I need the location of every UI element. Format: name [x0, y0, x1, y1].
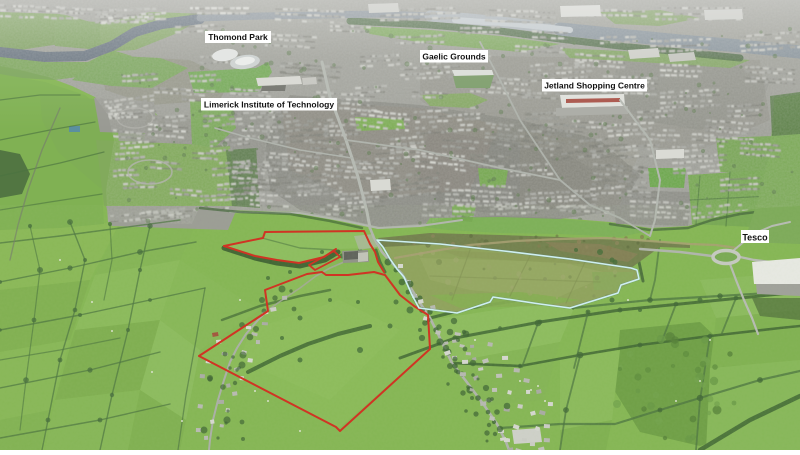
svg-text:Jetland Shopping Centre: Jetland Shopping Centre: [544, 81, 645, 91]
svg-text:Gaelic Grounds: Gaelic Grounds: [422, 52, 486, 62]
svg-text:Thomond Park: Thomond Park: [208, 32, 268, 42]
svg-text:Tesco: Tesco: [742, 233, 768, 243]
svg-text:Limerick Institute of Technolo: Limerick Institute of Technology: [204, 100, 334, 110]
